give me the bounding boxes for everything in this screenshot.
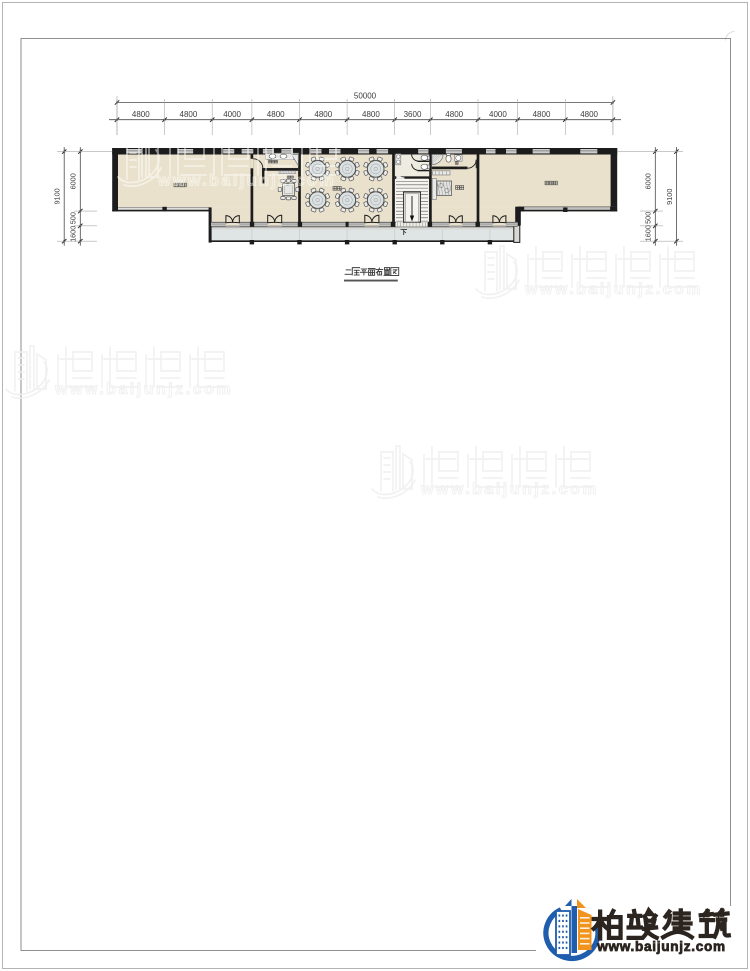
- svg-text:www.baijunjz.com: www.baijunjz.com: [524, 281, 703, 298]
- svg-text:4800: 4800: [533, 110, 551, 119]
- svg-text:4800: 4800: [314, 110, 332, 119]
- svg-text:4800: 4800: [362, 110, 380, 119]
- svg-text:www.baijunjz.com: www.baijunjz.com: [596, 939, 726, 954]
- svg-text:500: 500: [69, 212, 78, 224]
- svg-text:9100: 9100: [53, 188, 62, 204]
- svg-text:4800: 4800: [445, 110, 463, 119]
- svg-text:1600: 1600: [69, 226, 78, 242]
- svg-text:4800: 4800: [132, 110, 150, 119]
- svg-text:6000: 6000: [69, 173, 78, 189]
- svg-text:4800: 4800: [180, 110, 198, 119]
- svg-text:500: 500: [644, 212, 653, 224]
- svg-text:4000: 4000: [223, 110, 241, 119]
- svg-text:1600: 1600: [644, 225, 653, 241]
- svg-text:4800: 4800: [580, 110, 598, 119]
- svg-text:www.baijunjz.com: www.baijunjz.com: [54, 381, 233, 398]
- svg-text:4000: 4000: [489, 110, 507, 119]
- svg-text:www.baijunjz.com: www.baijunjz.com: [157, 173, 336, 190]
- svg-text:3600: 3600: [404, 110, 422, 119]
- svg-text:www.baijunjz.com: www.baijunjz.com: [420, 481, 599, 498]
- svg-text:6000: 6000: [644, 173, 653, 189]
- svg-text:4800: 4800: [267, 110, 285, 119]
- svg-text:50000: 50000: [354, 92, 377, 101]
- svg-text:9100: 9100: [665, 189, 674, 205]
